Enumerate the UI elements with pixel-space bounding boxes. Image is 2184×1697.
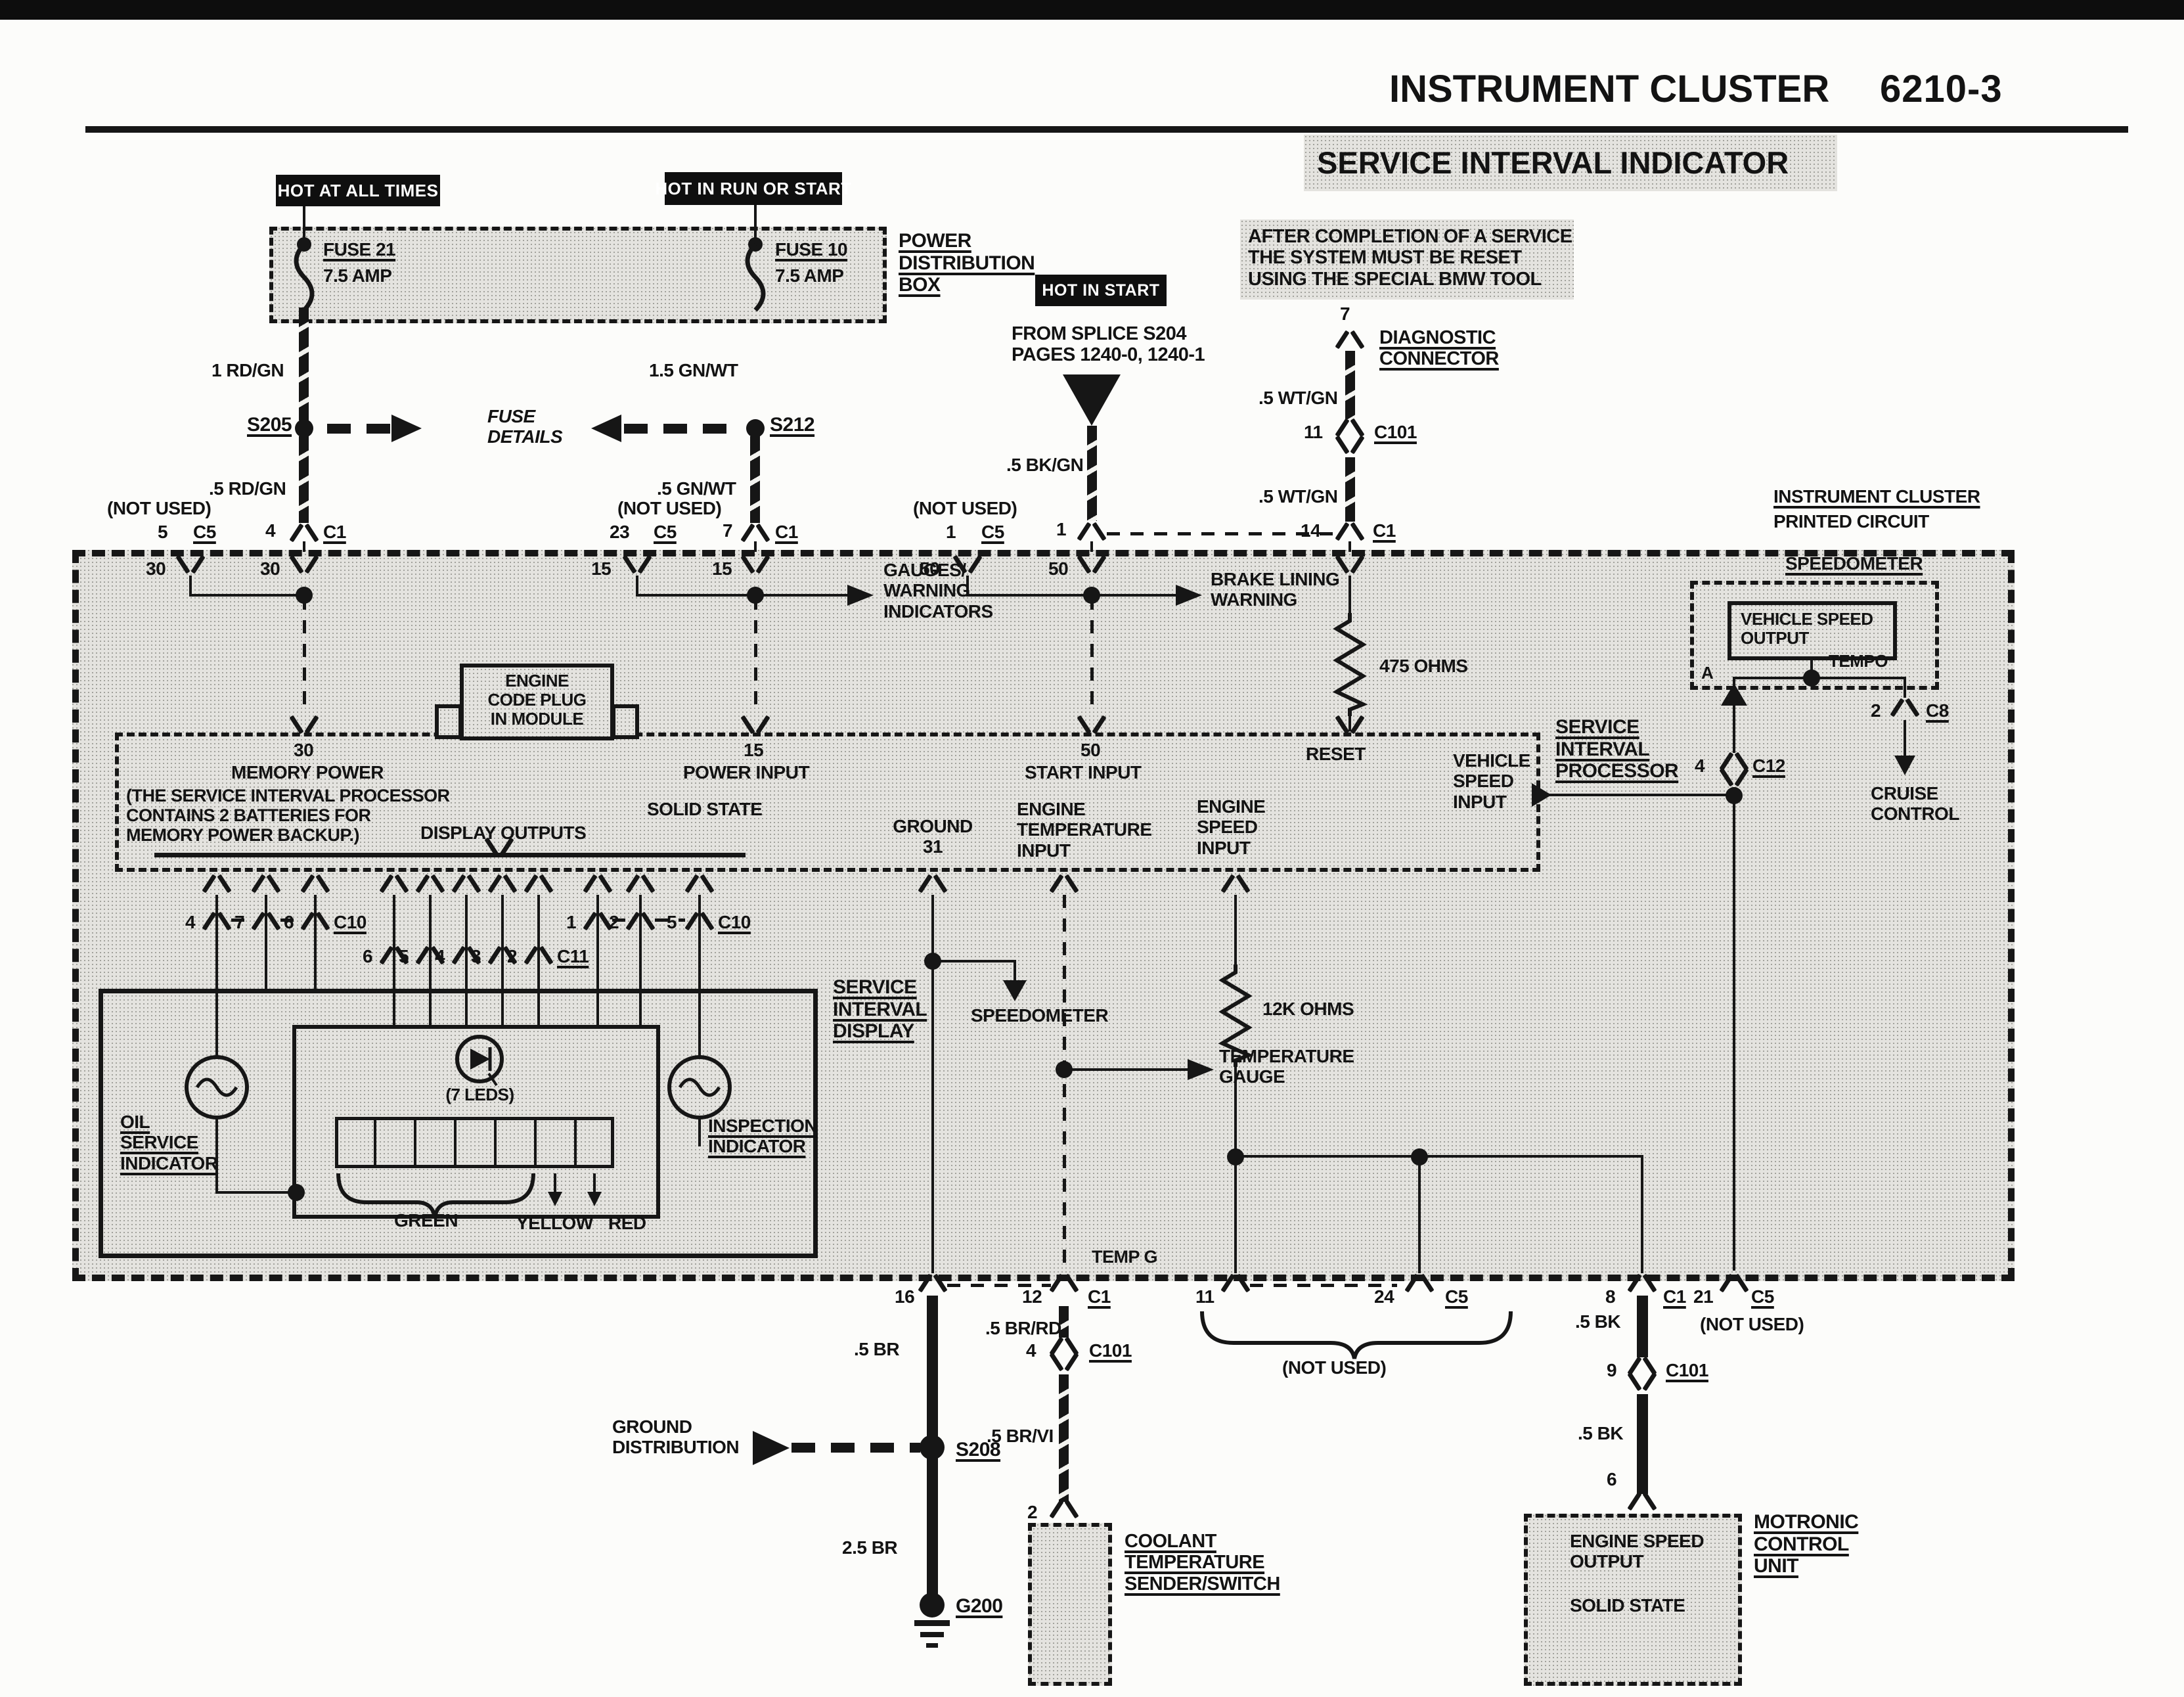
pin-2: 2 [609,912,619,932]
connector-c5-label: C5 [193,522,216,542]
page-top-bar [0,0,2184,20]
connector-c11-label: C11 [557,946,589,966]
pin-2: 2 [1027,1502,1037,1522]
green-label: GREEN [394,1210,458,1231]
connector-c8-label: C8 [1926,700,1949,721]
pin-15: 15 [591,558,611,579]
wire-label-5brvi: .5 BR/VI [987,1426,1054,1446]
speedometer-box-label: SPEEDOMETER [1785,553,1923,574]
pin-12: 12 [1022,1286,1042,1307]
power-input-label: POWER INPUT [683,762,809,782]
pin-50: 50 [1048,558,1068,579]
pin-4: 4 [435,946,445,966]
fuse21-amp-label: 7.5 AMP [323,265,391,286]
pin-11: 11 [1195,1286,1215,1307]
led-diode [470,1049,490,1070]
connector-c10-label: C10 [718,912,751,932]
connector-c1-label: C1 [1663,1286,1686,1307]
pin-2: 2 [1871,700,1881,721]
connector-c101-label: C101 [1374,422,1417,442]
pin-5: 5 [158,522,167,542]
pin-24: 24 [1374,1286,1394,1307]
vehicle-speed-output-label: VEHICLE SPEED OUTPUT [1741,610,1873,648]
pin-3: 3 [471,946,481,966]
pin-4: 4 [185,912,195,932]
hot-in-start-tag: HOT IN START [1035,275,1167,306]
connector-c1-label: C1 [775,522,798,542]
engine-speed-output-label: ENGINE SPEED OUTPUT [1570,1531,1704,1572]
temp-g-label: TEMP G [1092,1247,1157,1267]
pin-6: 6 [1607,1469,1616,1489]
fuse-details-label: FUSE DETAILS [487,406,562,447]
service-interval-processor-label: SERVICE INTERVAL PROCESSOR [1555,716,1678,782]
pin-6: 6 [284,912,294,932]
pin-21: 21 [1693,1286,1713,1307]
connector-c1-label: C1 [323,522,346,542]
fuse-10-icon [747,244,763,310]
from-splice-note: FROM SPLICE S204 PAGES 1240-0, 1240-1 [1012,323,1205,366]
hot-at-all-times-tag: HOT AT ALL TIMES [276,175,440,206]
pin-5: 5 [667,912,677,932]
wire-label-5bk: .5 BK [1575,1311,1620,1332]
red-label: RED [608,1213,646,1233]
pin-7: 7 [723,520,732,541]
solid-state-label: SOLID STATE [647,799,762,819]
not-used-label: (NOT USED) [1700,1314,1804,1334]
wire-label-5wtgn: .5 WT/GN [1259,388,1337,408]
splice-s205-label: S205 [247,414,292,436]
not-used-label: (NOT USED) [913,498,1017,518]
wire-label-1rdgn: 1 RD/GN [212,360,284,380]
ground-31-label: GROUND 31 [890,816,975,857]
oil-service-indicator-label: OIL SERVICE INDICATOR [120,1112,217,1173]
pin-a: A [1701,664,1713,683]
connector-c1-label: C1 [1088,1286,1111,1307]
splice-s212-label: S212 [770,414,814,436]
wire-label-5brrd: .5 BR/RD [985,1318,1061,1338]
pin-4: 4 [1026,1340,1036,1361]
cluster-label-line2: PRINTED CIRCUIT [1773,511,1929,532]
pin-4: 4 [1695,756,1705,776]
resistor-475-label: 475 OHMS [1379,656,1468,676]
pin-30: 30 [260,558,280,579]
page-number: 6210-3 [1880,68,2003,111]
diagram-subtitle: SERVICE INTERVAL INDICATOR [1317,146,1789,181]
page-title: INSTRUMENT CLUSTER [1389,68,1829,111]
wiring-diagram-page: INSTRUMENT CLUSTER 6210-3 SERVICE INTERV… [0,0,2184,1697]
connector-c5-label: C5 [654,522,677,542]
cluster-label-line1: INSTRUMENT CLUSTER [1773,486,1980,507]
pin-8: 8 [1605,1286,1615,1307]
pin-15: 15 [744,740,763,760]
pin-16: 16 [895,1286,914,1307]
display-outputs-label: DISPLAY OUTPUTS [420,823,586,843]
connector-c10-label: C10 [334,912,367,932]
fuse21-label: FUSE 21 [323,239,395,260]
pin-14: 14 [1301,520,1320,541]
pin-4: 4 [265,520,275,541]
pin-23: 23 [610,522,629,542]
cruise-control-label: CRUISE CONTROL [1871,783,1959,825]
wire-label-5wtgn: .5 WT/GN [1259,486,1337,507]
not-used-label: (NOT USED) [107,498,211,518]
start-input-label: START INPUT [1025,762,1142,782]
memory-power-label: MEMORY POWER [231,762,384,782]
gauges-warning-label: GAUGES/ WARNING INDICATORS [883,560,993,622]
resistor-12k-label: 12K OHMS [1262,999,1354,1019]
pin-7: 7 [1340,304,1350,324]
power-distribution-box-label: POWER DISTRIBUTION BOX [899,230,1035,296]
not-used-label: (NOT USED) [1282,1357,1386,1378]
wire-label-5rdgn: .5 RD/GN [209,478,286,499]
engine-code-plug-label: ENGINE CODE PLUG IN MODULE [460,671,614,729]
inspection-indicator-label: INSPECTION INDICATOR [708,1116,817,1157]
connector-c5-label: C5 [1751,1286,1774,1307]
connector-c101-label: C101 [1089,1340,1132,1361]
speedometer-branch-label: SPEEDOMETER [971,1005,1108,1026]
wire-label-5bk: .5 BK [1578,1423,1623,1443]
connector-c5-label: C5 [1445,1286,1468,1307]
wire-label-5br: .5 BR [854,1339,899,1359]
pin-2: 2 [507,946,517,966]
not-used-label: (NOT USED) [617,498,721,518]
ground-distribution-label: GROUND DISTRIBUTION [612,1416,739,1458]
connector-c101-label: C101 [1666,1360,1708,1380]
pin-9: 9 [1607,1360,1616,1380]
seven-leds-label: (7 LEDS) [426,1085,534,1104]
engine-speed-input-label: ENGINE SPEED INPUT [1197,796,1265,858]
pin-5: 5 [399,946,409,966]
not-used-brace-icon [1202,1311,1511,1359]
hot-in-run-or-start-tag: HOT IN RUN OR START [665,172,842,205]
pin-1: 1 [1056,519,1066,539]
vehicle-speed-input-label: VEHICLE SPEED INPUT [1453,750,1530,812]
wire-label-15gnwt: 1.5 GN/WT [649,360,738,380]
inspection-bulb-filament [680,1079,719,1095]
motronic-solid-state-label: SOLID STATE [1570,1595,1685,1616]
pin-1: 1 [566,912,576,932]
service-interval-display-label: SERVICE INTERVAL DISPLAY [833,976,927,1043]
pin-50: 50 [1081,740,1100,760]
pin-7: 7 [234,912,244,932]
motronic-control-unit-label: MOTRONIC CONTROL UNIT [1754,1511,1858,1577]
reset-label: RESET [1306,744,1366,764]
reset-note: AFTER COMPLETION OF A SERVICE THE SYSTEM… [1248,226,1572,290]
connector-c1-label: C1 [1373,520,1396,541]
wire-label-25br: 2.5 BR [842,1537,897,1558]
coolant-temp-sender-label: COOLANT TEMPERATURE SENDER/SWITCH [1125,1531,1280,1595]
brake-lining-label: BRAKE LINING WARNING [1211,569,1339,610]
diagnostic-connector-label: DIAGNOSTIC CONNECTOR [1379,327,1499,370]
temperature-gauge-label: TEMPERATURE GAUGE [1219,1046,1354,1087]
pin-11: 11 [1304,422,1323,442]
fuse10-label: FUSE 10 [775,239,847,260]
yellow-label: YELLOW [516,1213,593,1233]
ground-g200-label: G200 [956,1595,1002,1618]
wire-label-5bkgn: .5 BK/GN [1006,455,1083,475]
pin-15: 15 [712,558,732,579]
pin-1: 1 [946,522,956,542]
connector-c5-label: C5 [981,522,1004,542]
pin-30: 30 [294,740,313,760]
pin-30: 30 [146,558,166,579]
wire-label-5gnwt: .5 GN/WT [657,478,736,499]
connector-c12-label: C12 [1752,756,1785,776]
oil-bulb-filament [197,1079,236,1095]
battery-note: (THE SERVICE INTERVAL PROCESSOR CONTAINS… [126,786,450,846]
resistor-475-icon [1337,613,1363,716]
tempo-label: TEMPO [1829,652,1888,671]
fuse-21-icon [296,244,312,310]
pin-6: 6 [363,946,372,966]
engine-temp-input-label: ENGINE TEMPERATURE INPUT [1017,799,1152,861]
fuse10-amp-label: 7.5 AMP [775,265,843,286]
